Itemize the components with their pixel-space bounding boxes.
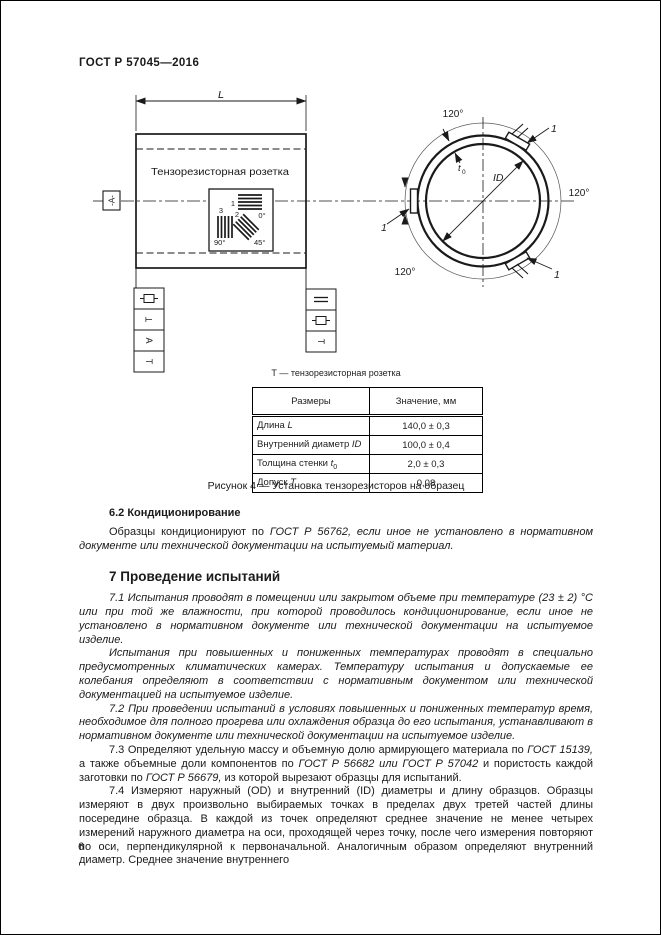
id-label: ID <box>493 172 504 184</box>
figure-4-drawing: L -А- Тензорезисторная розетка <box>81 91 611 379</box>
svg-text:3: 3 <box>219 206 223 215</box>
paragraph-7-1b: Испытания при повышенных и пониженных те… <box>79 647 593 702</box>
dimensions-table: Размеры Значение, мм Длина L 140,0 ± 0,3… <box>252 387 483 493</box>
angle-label-1: 120° <box>443 109 464 120</box>
table-header-row: Размеры Значение, мм <box>253 388 483 416</box>
svg-text:90°: 90° <box>214 238 225 247</box>
page-number: 6 <box>78 841 84 853</box>
column-header-dimensions: Размеры <box>253 388 370 416</box>
svg-text:Т: Т <box>144 359 154 365</box>
rosette-title: Тензорезисторная розетка <box>151 167 289 178</box>
strain-gauge-rosette: 1 0° 3 90° 2 45° <box>209 189 273 251</box>
gauge-left <box>411 189 418 213</box>
gauge-ref-3: 1 <box>381 222 387 234</box>
flatness-symbol <box>312 317 330 325</box>
gauge-ref-1: 1 <box>551 123 557 135</box>
svg-text:-А-: -А- <box>108 195 117 206</box>
document-page: ГОСТ Р 57045—2016 L -А- Тензорезисторная… <box>0 0 661 935</box>
svg-text:45°: 45° <box>254 238 265 247</box>
tolerance-frame-right: Т <box>306 268 336 352</box>
gauge-ref-2: 1 <box>554 269 560 281</box>
paragraph-7-4: 7.4 Измеряют наружный (OD) и внутренний … <box>79 785 593 868</box>
wall-thickness-label: t <box>458 163 461 174</box>
specimen-section-view: 120° 120° 120° 1 1 1 t 0 ID <box>381 109 589 287</box>
svg-text:1: 1 <box>231 199 235 208</box>
angle-label-2: 120° <box>569 188 590 199</box>
figure-caption: Рисунок 4 — Установка тензорезисторов на… <box>79 480 593 492</box>
paragraph-7-3: 7.3 Определяют удельную массу и объемную… <box>79 744 593 785</box>
figure-legend: Т — тензорезисторная розетка <box>79 368 593 378</box>
svg-text:Т: Т <box>316 339 326 345</box>
table-row: Длина L 140,0 ± 0,3 <box>253 416 483 436</box>
datum-a-flag: -А- <box>93 191 120 210</box>
column-header-value: Значение, мм <box>370 388 483 416</box>
body-text: 6.2 Кондиционирование Образцы кондициони… <box>79 507 593 868</box>
svg-text:0°: 0° <box>258 211 265 220</box>
svg-text:Т: Т <box>144 316 154 322</box>
paragraph-7-2: 7.2 При проведении испытаний в условиях … <box>79 703 593 744</box>
wall-thickness-sub: 0 <box>462 169 466 176</box>
svg-text:А: А <box>144 337 154 343</box>
tolerance-frame-left: Т А Т <box>134 268 164 372</box>
length-label: L <box>218 91 224 101</box>
angle-label-3: 120° <box>395 267 416 278</box>
parallelism-symbol <box>314 298 328 302</box>
svg-text:2: 2 <box>235 210 239 219</box>
table-row: Внутренний диаметр ID 100,0 ± 0,4 <box>253 436 483 455</box>
table-row: Толщина стенки t0 2,0 ± 0,3 <box>253 455 483 474</box>
section-7-title: 7 Проведение испытаний <box>109 570 593 584</box>
page-header: ГОСТ Р 57045—2016 <box>79 57 199 69</box>
paragraph-6-2: Образцы кондиционируют по ГОСТ Р 56762, … <box>79 526 593 554</box>
paragraph-7-1: 7.1 Испытания проводят в помещении или з… <box>79 592 593 647</box>
flatness-symbol <box>140 295 158 303</box>
section-6-2-title: 6.2 Кондиционирование <box>109 507 593 521</box>
